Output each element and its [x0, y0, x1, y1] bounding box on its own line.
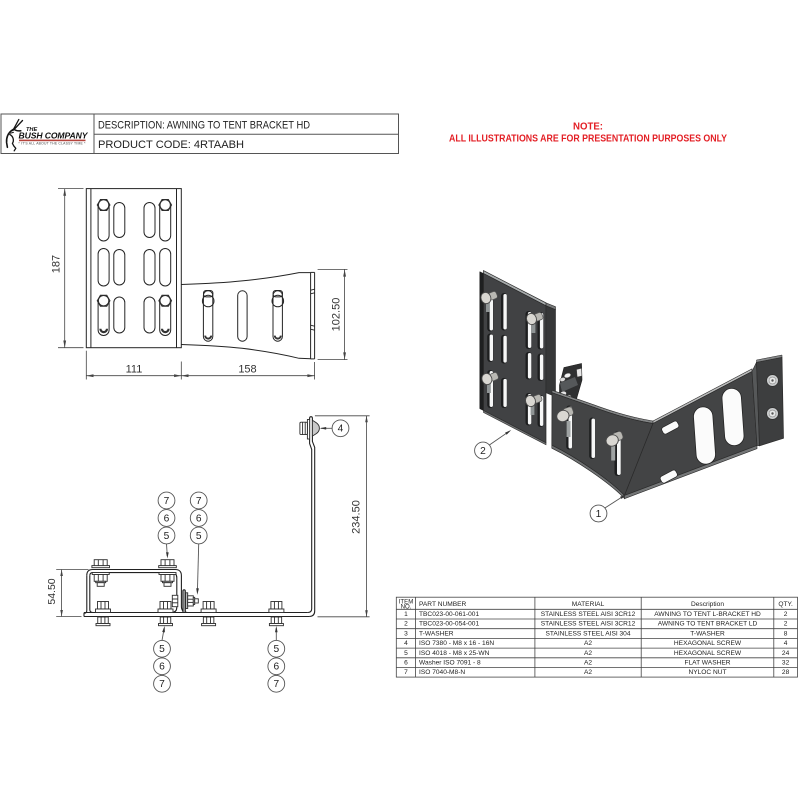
svg-text:7: 7 [196, 496, 202, 507]
svg-text:1: 1 [404, 611, 408, 618]
svg-text:NYLOC NUT: NYLOC NUT [688, 669, 726, 676]
svg-text:6: 6 [273, 662, 279, 673]
svg-text:8: 8 [784, 630, 788, 637]
svg-text:STAINLESS STEEL AISI 3CR12: STAINLESS STEEL AISI 3CR12 [541, 611, 636, 618]
svg-text:6: 6 [404, 659, 408, 666]
svg-text:PRODUCT CODE: 4RTAABH: PRODUCT CODE: 4RTAABH [98, 139, 244, 151]
svg-text:DESCRIPTION: AWNING TO TENT BR: DESCRIPTION: AWNING TO TENT BRACKET HD [98, 120, 310, 132]
svg-text:QTY.: QTY. [778, 601, 793, 608]
svg-text:ALL ILLUSTRATIONS ARE FOR PRES: ALL ILLUSTRATIONS ARE FOR PRESENTATION P… [449, 133, 727, 144]
svg-text:2: 2 [784, 611, 788, 618]
svg-text:1: 1 [596, 509, 602, 520]
svg-text:3: 3 [404, 630, 408, 637]
svg-text:STAINLESS STEEL AISI 304: STAINLESS STEEL AISI 304 [545, 630, 630, 637]
svg-text:2: 2 [784, 621, 788, 628]
svg-text:* IT'S ALL ABOUT THE CLASSY TI: * IT'S ALL ABOUT THE CLASSY TIME * [18, 141, 86, 145]
svg-text:Washer ISO 7091 - 8: Washer ISO 7091 - 8 [419, 659, 481, 666]
svg-text:187: 187 [51, 255, 63, 273]
svg-text:6: 6 [164, 513, 170, 524]
svg-text:5: 5 [273, 644, 279, 655]
svg-text:5: 5 [159, 644, 165, 655]
svg-text:A2: A2 [584, 669, 592, 676]
svg-text:6: 6 [196, 513, 202, 524]
svg-text:6: 6 [159, 662, 165, 673]
svg-text:NOTE:: NOTE: [573, 121, 603, 132]
svg-text:7: 7 [164, 496, 170, 507]
svg-text:ISO 7040-M8-N: ISO 7040-M8-N [419, 669, 465, 676]
svg-text:MATERIAL: MATERIAL [572, 601, 605, 608]
svg-text:A2: A2 [584, 650, 592, 657]
svg-text:32: 32 [782, 659, 790, 666]
svg-text:TBC023-00-054-001: TBC023-00-054-001 [419, 621, 479, 628]
svg-text:7: 7 [404, 669, 408, 676]
svg-text:A2: A2 [584, 640, 592, 647]
svg-text:54.50: 54.50 [46, 578, 58, 604]
svg-text:2: 2 [480, 446, 486, 457]
svg-text:A2: A2 [584, 659, 592, 666]
svg-text:HEXAGONAL SCREW: HEXAGONAL SCREW [674, 640, 742, 647]
svg-text:7: 7 [159, 679, 165, 690]
svg-text:T-WASHER: T-WASHER [690, 630, 725, 637]
svg-text:2: 2 [404, 621, 408, 628]
svg-text:ISO 7380 - M8 x 16 - 16N: ISO 7380 - M8 x 16 - 16N [419, 640, 494, 647]
svg-text:28: 28 [782, 669, 790, 676]
svg-text:TBC023-00-061-001: TBC023-00-061-001 [419, 611, 479, 618]
svg-text:AWNING TO TENT L-BRACKET HD: AWNING TO TENT L-BRACKET HD [654, 611, 761, 618]
svg-text:4: 4 [784, 640, 788, 647]
svg-text:111: 111 [126, 364, 143, 376]
svg-text:AWNING TO TENT BRACKET LD: AWNING TO TENT BRACKET LD [658, 621, 758, 628]
svg-text:ISO 4018 - M8 x 25-WN: ISO 4018 - M8 x 25-WN [419, 650, 490, 657]
svg-text:4: 4 [404, 640, 408, 647]
svg-text:STAINLESS STEEL AISI 3CR12: STAINLESS STEEL AISI 3CR12 [541, 621, 636, 628]
svg-text:7: 7 [273, 679, 279, 690]
svg-text:234.50: 234.50 [350, 500, 362, 534]
svg-text:5: 5 [404, 650, 408, 657]
svg-text:24: 24 [782, 650, 790, 657]
svg-text:Description: Description [691, 601, 724, 608]
svg-text:PART NUMBER: PART NUMBER [419, 601, 467, 608]
svg-text:102.50: 102.50 [331, 298, 343, 332]
svg-text:HEXAGONAL SCREW: HEXAGONAL SCREW [674, 650, 742, 657]
svg-text:T-WASHER: T-WASHER [419, 630, 454, 637]
svg-text:4: 4 [338, 424, 344, 435]
svg-text:NO.: NO. [401, 604, 412, 611]
svg-text:158: 158 [238, 364, 256, 376]
svg-text:5: 5 [196, 531, 202, 542]
svg-text:FLAT WASHER: FLAT WASHER [684, 659, 730, 666]
svg-text:5: 5 [164, 531, 170, 542]
svg-text:BUSH COMPANY: BUSH COMPANY [19, 131, 89, 141]
